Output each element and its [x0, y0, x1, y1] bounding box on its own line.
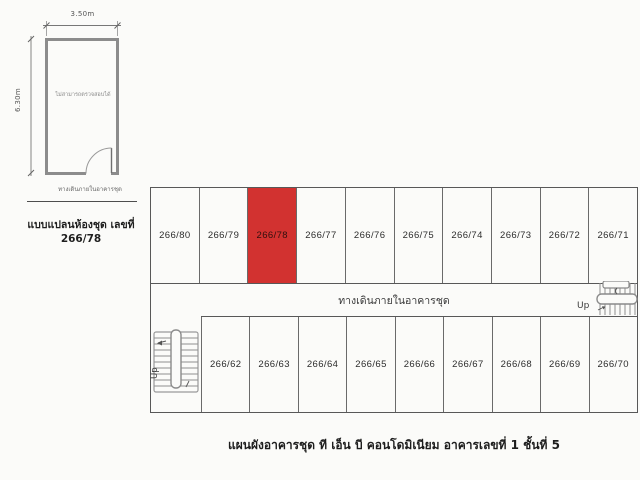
- unit-label: 266/77: [305, 230, 336, 241]
- unit-label: 266/62: [210, 359, 241, 370]
- unit-label: 266/79: [208, 230, 239, 241]
- unit-label: 266/63: [258, 359, 289, 370]
- unit-cell-266-73: 266/73: [492, 188, 541, 283]
- unit-cell-266-79: 266/79: [200, 188, 249, 283]
- right-stairs-icon: [596, 281, 639, 317]
- unit-cell-266-62: 266/62: [202, 317, 250, 412]
- unit-plan-walkway-label: ทางเดินภายในอาคารชุด: [40, 184, 140, 194]
- bottom-unit-row: 266/62266/63266/64266/65266/66266/67266/…: [201, 317, 637, 412]
- unit-label: 266/78: [257, 230, 288, 241]
- left-stairwell: Up: [151, 317, 201, 412]
- door-swing-arc: [86, 148, 112, 174]
- unit-plan-caption: แบบแปลนห้องชุด เลขที่ 266/78: [6, 216, 156, 245]
- unit-cell-266-74: 266/74: [443, 188, 492, 283]
- unit-cell-266-64: 266/64: [299, 317, 347, 412]
- unit-label: 266/67: [452, 359, 483, 370]
- height-dimension-label: 6.30m: [14, 70, 22, 130]
- unit-label: 266/66: [404, 359, 435, 370]
- corridor: ทางเดินภายในอาคารชุด: [151, 284, 637, 316]
- unit-label: 266/73: [500, 230, 531, 241]
- corridor-label: ทางเดินภายในอาคารชุด: [338, 292, 450, 309]
- unit-cell-266-78: 266/78: [248, 188, 297, 283]
- room-walls: [47, 40, 118, 174]
- unit-label: 266/65: [355, 359, 386, 370]
- dim-extension-lines: [47, 21, 118, 36]
- unit-cell-266-77: 266/77: [297, 188, 346, 283]
- unit-cell-266-71: 266/71: [589, 188, 637, 283]
- top-unit-row: 266/80266/79266/78266/77266/76266/75266/…: [151, 188, 637, 284]
- right-stairs-up-label: Up: [577, 301, 601, 311]
- unit-cell-266-72: 266/72: [541, 188, 590, 283]
- unit-plan-drawing: [0, 0, 160, 245]
- unit-label: 266/64: [307, 359, 338, 370]
- unit-label: 266/76: [354, 230, 385, 241]
- unit-label: 266/70: [597, 359, 628, 370]
- floor-plan-caption: แผนผังอาคารชุด ที เอ็น บี คอนโดมิเนียม อ…: [150, 436, 638, 455]
- left-stairs-up-label: Up: [150, 349, 164, 379]
- unit-cell-266-67: 266/67: [444, 317, 492, 412]
- building-floor-plan: 266/80266/79266/78266/77266/76266/75266/…: [150, 187, 638, 413]
- unit-cell-266-68: 266/68: [493, 317, 541, 412]
- unit-cell-266-65: 266/65: [347, 317, 395, 412]
- unit-label: 266/69: [549, 359, 580, 370]
- unit-cell-266-66: 266/66: [396, 317, 444, 412]
- unit-label: 266/80: [159, 230, 190, 241]
- unit-cell-266-76: 266/76: [346, 188, 395, 283]
- unit-cell-266-63: 266/63: [250, 317, 298, 412]
- unit-cell-266-70: 266/70: [590, 317, 637, 412]
- width-dimension-label: 3.50m: [60, 10, 105, 18]
- room-note-text: ไม่สามารถตรวจสอบได้: [50, 93, 116, 99]
- unit-label: 266/68: [501, 359, 532, 370]
- unit-floor-plan: 3.50m 6.30m ไม่สามารถตรวจสอบได้ ทางเดินภ…: [0, 0, 160, 245]
- unit-label: 266/71: [597, 230, 628, 241]
- unit-cell-266-75: 266/75: [395, 188, 444, 283]
- caption-underline: [27, 201, 137, 202]
- unit-label: 266/72: [549, 230, 580, 241]
- unit-cell-266-80: 266/80: [151, 188, 200, 283]
- unit-label: 266/75: [403, 230, 434, 241]
- unit-label: 266/74: [451, 230, 482, 241]
- unit-cell-266-69: 266/69: [541, 317, 589, 412]
